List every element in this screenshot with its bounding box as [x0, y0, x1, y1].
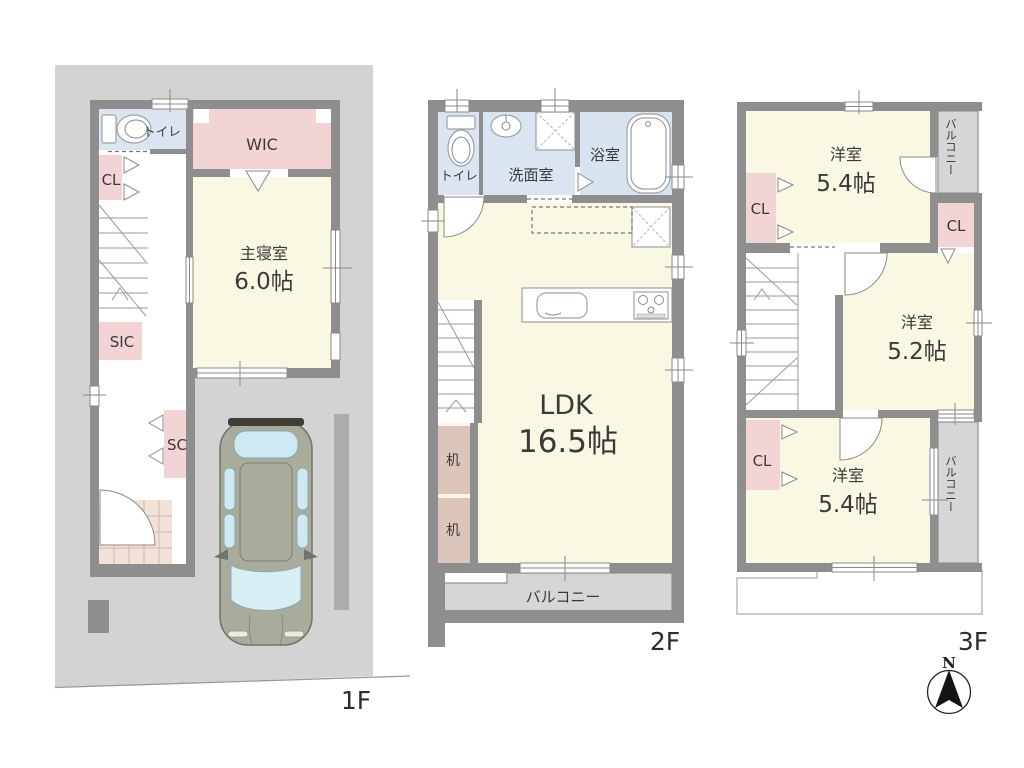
- washing-machine-icon: [536, 112, 575, 150]
- f1-bedroom-size: 6.0帖: [234, 269, 294, 295]
- f2-bath-label: 浴室: [590, 146, 620, 164]
- f2-ldk-name: LDK: [539, 390, 594, 421]
- f2-washroom-label: 洗面室: [508, 166, 553, 184]
- f2-ldk-size: 16.5帖: [518, 424, 618, 460]
- f3-floor-label: 3F: [958, 627, 988, 656]
- f3-room-mid-name: 洋室: [901, 313, 933, 332]
- floor-1f: トイレ WIC CL 主寝室 6.0帖 SIC SC 1F: [55, 65, 410, 715]
- bathtub-icon: [627, 114, 670, 193]
- floor-2f: トイレ 洗面室 浴室 LDK 16.5帖 机 机 バルコニー 2F: [421, 88, 693, 656]
- f1-floor-label: 1F: [341, 686, 371, 715]
- f1-bedroom-name: 主寝室: [240, 244, 288, 263]
- floor-plan-page: トイレ WIC CL 主寝室 6.0帖 SIC SC 1F: [0, 0, 1024, 768]
- f3-balcony-top-label: バルコニー: [944, 118, 958, 176]
- compass-north-label: N: [942, 654, 956, 672]
- f1-sc-label: SC: [167, 436, 187, 454]
- f2-balcony-label: バルコニー: [526, 588, 601, 606]
- f3-cl-top-left-label: CL: [751, 200, 770, 218]
- f3-room-bottom-size: 5.4帖: [818, 492, 878, 518]
- stove-icon: [634, 292, 668, 319]
- f3-balcony-bottom-label: バルコニー: [944, 455, 958, 513]
- f1-cl-label: CL: [102, 171, 121, 189]
- toilet-icon-2f: [447, 116, 475, 166]
- side-fence: [334, 414, 349, 610]
- f3-room-mid-size: 5.2帖: [887, 339, 947, 365]
- f2-toilet-label: トイレ: [440, 168, 478, 183]
- storage-box-icon: [632, 207, 670, 247]
- floor-plan-drawing: トイレ WIC CL 主寝室 6.0帖 SIC SC 1F: [0, 0, 1024, 768]
- f3-room-bottom-name: 洋室: [832, 466, 864, 485]
- f2-desk1-label: 机: [446, 453, 460, 469]
- f1-wic-niche-right: [316, 109, 331, 123]
- car-icon: [214, 418, 318, 645]
- f2-desk2-label: 机: [446, 523, 460, 539]
- f3-room-top-name: 洋室: [830, 145, 862, 164]
- kitchen-counter-icon: [522, 288, 672, 322]
- f1-sic-label: SIC: [110, 333, 134, 351]
- gate-pillar: [88, 600, 109, 633]
- f3-cl-bottom-left-label: CL: [753, 452, 772, 470]
- floor-3f: 洋室 5.4帖 CL CL 洋室 5.2帖 CL 洋室 5.4帖 バルコニー バ…: [730, 90, 992, 656]
- f2-stairwell: [438, 300, 474, 423]
- f3-cl-top-right-label: CL: [947, 217, 966, 235]
- f3-eaves-outline: [737, 570, 982, 614]
- compass-icon: N: [928, 654, 971, 714]
- f3-room-top-size: 5.4帖: [816, 171, 876, 197]
- f1-wic-niche-left: [194, 109, 209, 123]
- f1-wic-label: WIC: [246, 135, 278, 154]
- f2-floor-label: 2F: [650, 627, 680, 656]
- f1-toilet-label: トイレ: [143, 124, 181, 139]
- sink-icon: [491, 115, 521, 137]
